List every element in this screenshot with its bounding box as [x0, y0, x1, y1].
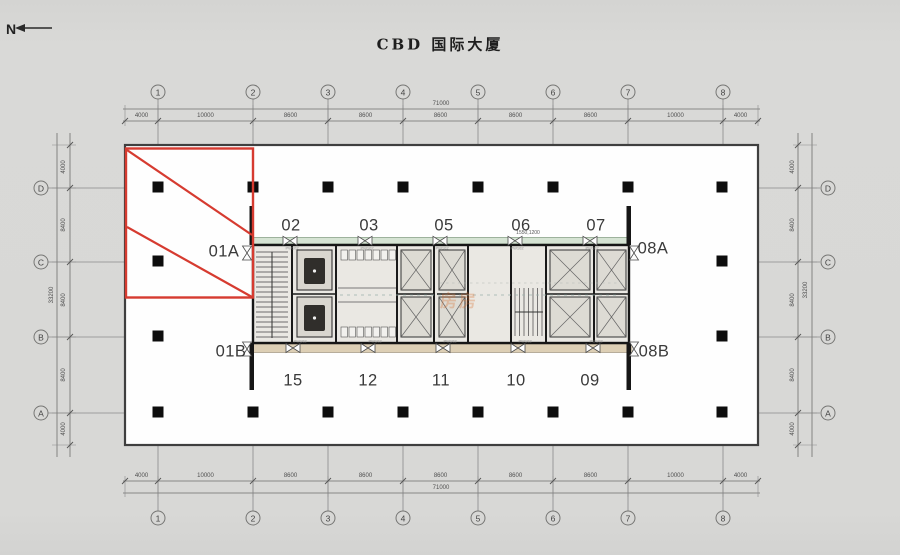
grid-bubble-col-top: 7 — [621, 85, 636, 100]
grid-bubble-row-left: C — [34, 255, 49, 270]
column — [153, 256, 164, 267]
dim-top: 4000 — [734, 113, 747, 119]
dim-left: 8400 — [61, 293, 67, 306]
dim-right: 4000 — [790, 422, 796, 435]
grid-bubble-col-top: 6 — [546, 85, 561, 100]
column — [548, 407, 559, 418]
grid-bubble-col-top: 2 — [246, 85, 261, 100]
dim-top: 8600 — [359, 113, 372, 119]
column — [248, 407, 259, 418]
dim-bottom: 10000 — [667, 473, 684, 479]
door-code: PW102 — [510, 246, 523, 251]
dim-bottom: 8600 — [584, 473, 597, 479]
grid-bubble-col-bottom: 4 — [396, 511, 411, 526]
column — [623, 407, 634, 418]
dim-bottom: 10000 — [197, 473, 214, 479]
north-label: N — [6, 21, 16, 37]
column — [153, 407, 164, 418]
page-title: CBD 国际大厦 — [377, 34, 504, 55]
unit-label: 15 — [283, 372, 302, 391]
dim-top: 8600 — [284, 113, 297, 119]
unit-label: 11 — [432, 372, 450, 391]
grid-bubble-col-bottom: 3 — [321, 511, 336, 526]
unit-label: 10 — [506, 372, 525, 391]
door-code: PW102 — [285, 246, 298, 251]
dim-top: 8600 — [584, 113, 597, 119]
column — [717, 256, 728, 267]
grid-bubble-col-bottom: 2 — [246, 511, 261, 526]
dim-bottom: 8600 — [434, 473, 447, 479]
grid-bubble-row-left: B — [34, 330, 49, 345]
grid-bubble-col-top: 3 — [321, 85, 336, 100]
dim-right: 8400 — [790, 293, 796, 306]
column — [717, 331, 728, 342]
door-code: PW102 — [585, 246, 598, 251]
column — [398, 182, 409, 193]
column — [548, 182, 559, 193]
unit-label: 03 — [359, 217, 378, 236]
dim-bottom: 8600 — [509, 473, 522, 479]
grid-bubble-col-top: 4 — [396, 85, 411, 100]
column — [473, 407, 484, 418]
column — [717, 407, 728, 418]
dim-bottom-total: 71000 — [433, 485, 450, 491]
column — [323, 182, 334, 193]
column — [623, 182, 634, 193]
grid-bubble-row-right: B — [821, 330, 836, 345]
dim-top: 8600 — [434, 113, 447, 119]
dim-left: 8400 — [61, 218, 67, 231]
unit-label-08B: 08B — [639, 343, 670, 362]
grid-bubble-col-bottom: 1 — [151, 511, 166, 526]
grid-bubble-row-left: A — [34, 406, 49, 421]
column — [398, 407, 409, 418]
dim-right: 8400 — [790, 218, 796, 231]
grid-bubble-col-top: 1 — [151, 85, 166, 100]
grid-bubble-row-right: A — [821, 406, 836, 421]
grid-bubble-col-top: 5 — [471, 85, 486, 100]
column — [323, 407, 334, 418]
dim-right: 4000 — [790, 160, 796, 173]
grid-bubble-col-bottom: 6 — [546, 511, 561, 526]
dim-left: 8400 — [61, 368, 67, 381]
unit-label: 09 — [580, 372, 599, 391]
dim-left: 4000 — [61, 160, 67, 173]
column — [473, 182, 484, 193]
grid-bubble-row-left: D — [34, 181, 49, 196]
unit-label: 06 — [511, 217, 530, 236]
grid-bubble-row-right: C — [821, 255, 836, 270]
dim-top-total: 71000 — [433, 101, 450, 107]
unit-label-01A: 01A — [209, 243, 240, 262]
dim-left-total: 33200 — [49, 287, 55, 304]
dim-bottom: 4000 — [135, 473, 148, 479]
dim-top: 10000 — [197, 113, 214, 119]
floorplan-drawing — [0, 0, 900, 555]
door-code: PW102 — [293, 339, 306, 344]
dim-left: 4000 — [61, 422, 67, 435]
dim-right: 8400 — [790, 368, 796, 381]
dim-top: 10000 — [667, 113, 684, 119]
unit-label: 05 — [434, 217, 453, 236]
door-code: PW102 — [360, 246, 373, 251]
watermark-text: 房房 — [440, 287, 478, 312]
dim-top: 8600 — [509, 113, 522, 119]
unit-label-01B: 01B — [216, 343, 247, 362]
dim-bottom: 4000 — [734, 473, 747, 479]
grid-bubble-row-right: D — [821, 181, 836, 196]
dim-bottom: 8600 — [359, 473, 372, 479]
column — [153, 182, 164, 193]
dim-bottom: 8600 — [284, 473, 297, 479]
unit-label: 12 — [358, 372, 377, 391]
grid-bubble-col-top: 8 — [716, 85, 731, 100]
grid-bubble-col-bottom: 7 — [621, 511, 636, 526]
floorplan-canvas: CBD 国际大厦 N 房房 1550,1200 1122334455667788… — [0, 0, 900, 555]
unit-label-08A: 08A — [638, 240, 669, 259]
door-code: PW102 — [368, 339, 381, 344]
door-code: PW102 — [435, 246, 448, 251]
dim-right-total: 33200 — [803, 282, 809, 299]
column — [717, 182, 728, 193]
grid-bubble-col-bottom: 8 — [716, 511, 731, 526]
door-code: PW102 — [518, 339, 531, 344]
door-code: PW102 — [589, 339, 602, 344]
grid-bubble-col-bottom: 5 — [471, 511, 486, 526]
column — [153, 331, 164, 342]
unit-label: 07 — [586, 217, 605, 236]
dim-top: 4000 — [135, 113, 148, 119]
door-code: PW102 — [443, 339, 456, 344]
unit-label: 02 — [281, 217, 300, 236]
